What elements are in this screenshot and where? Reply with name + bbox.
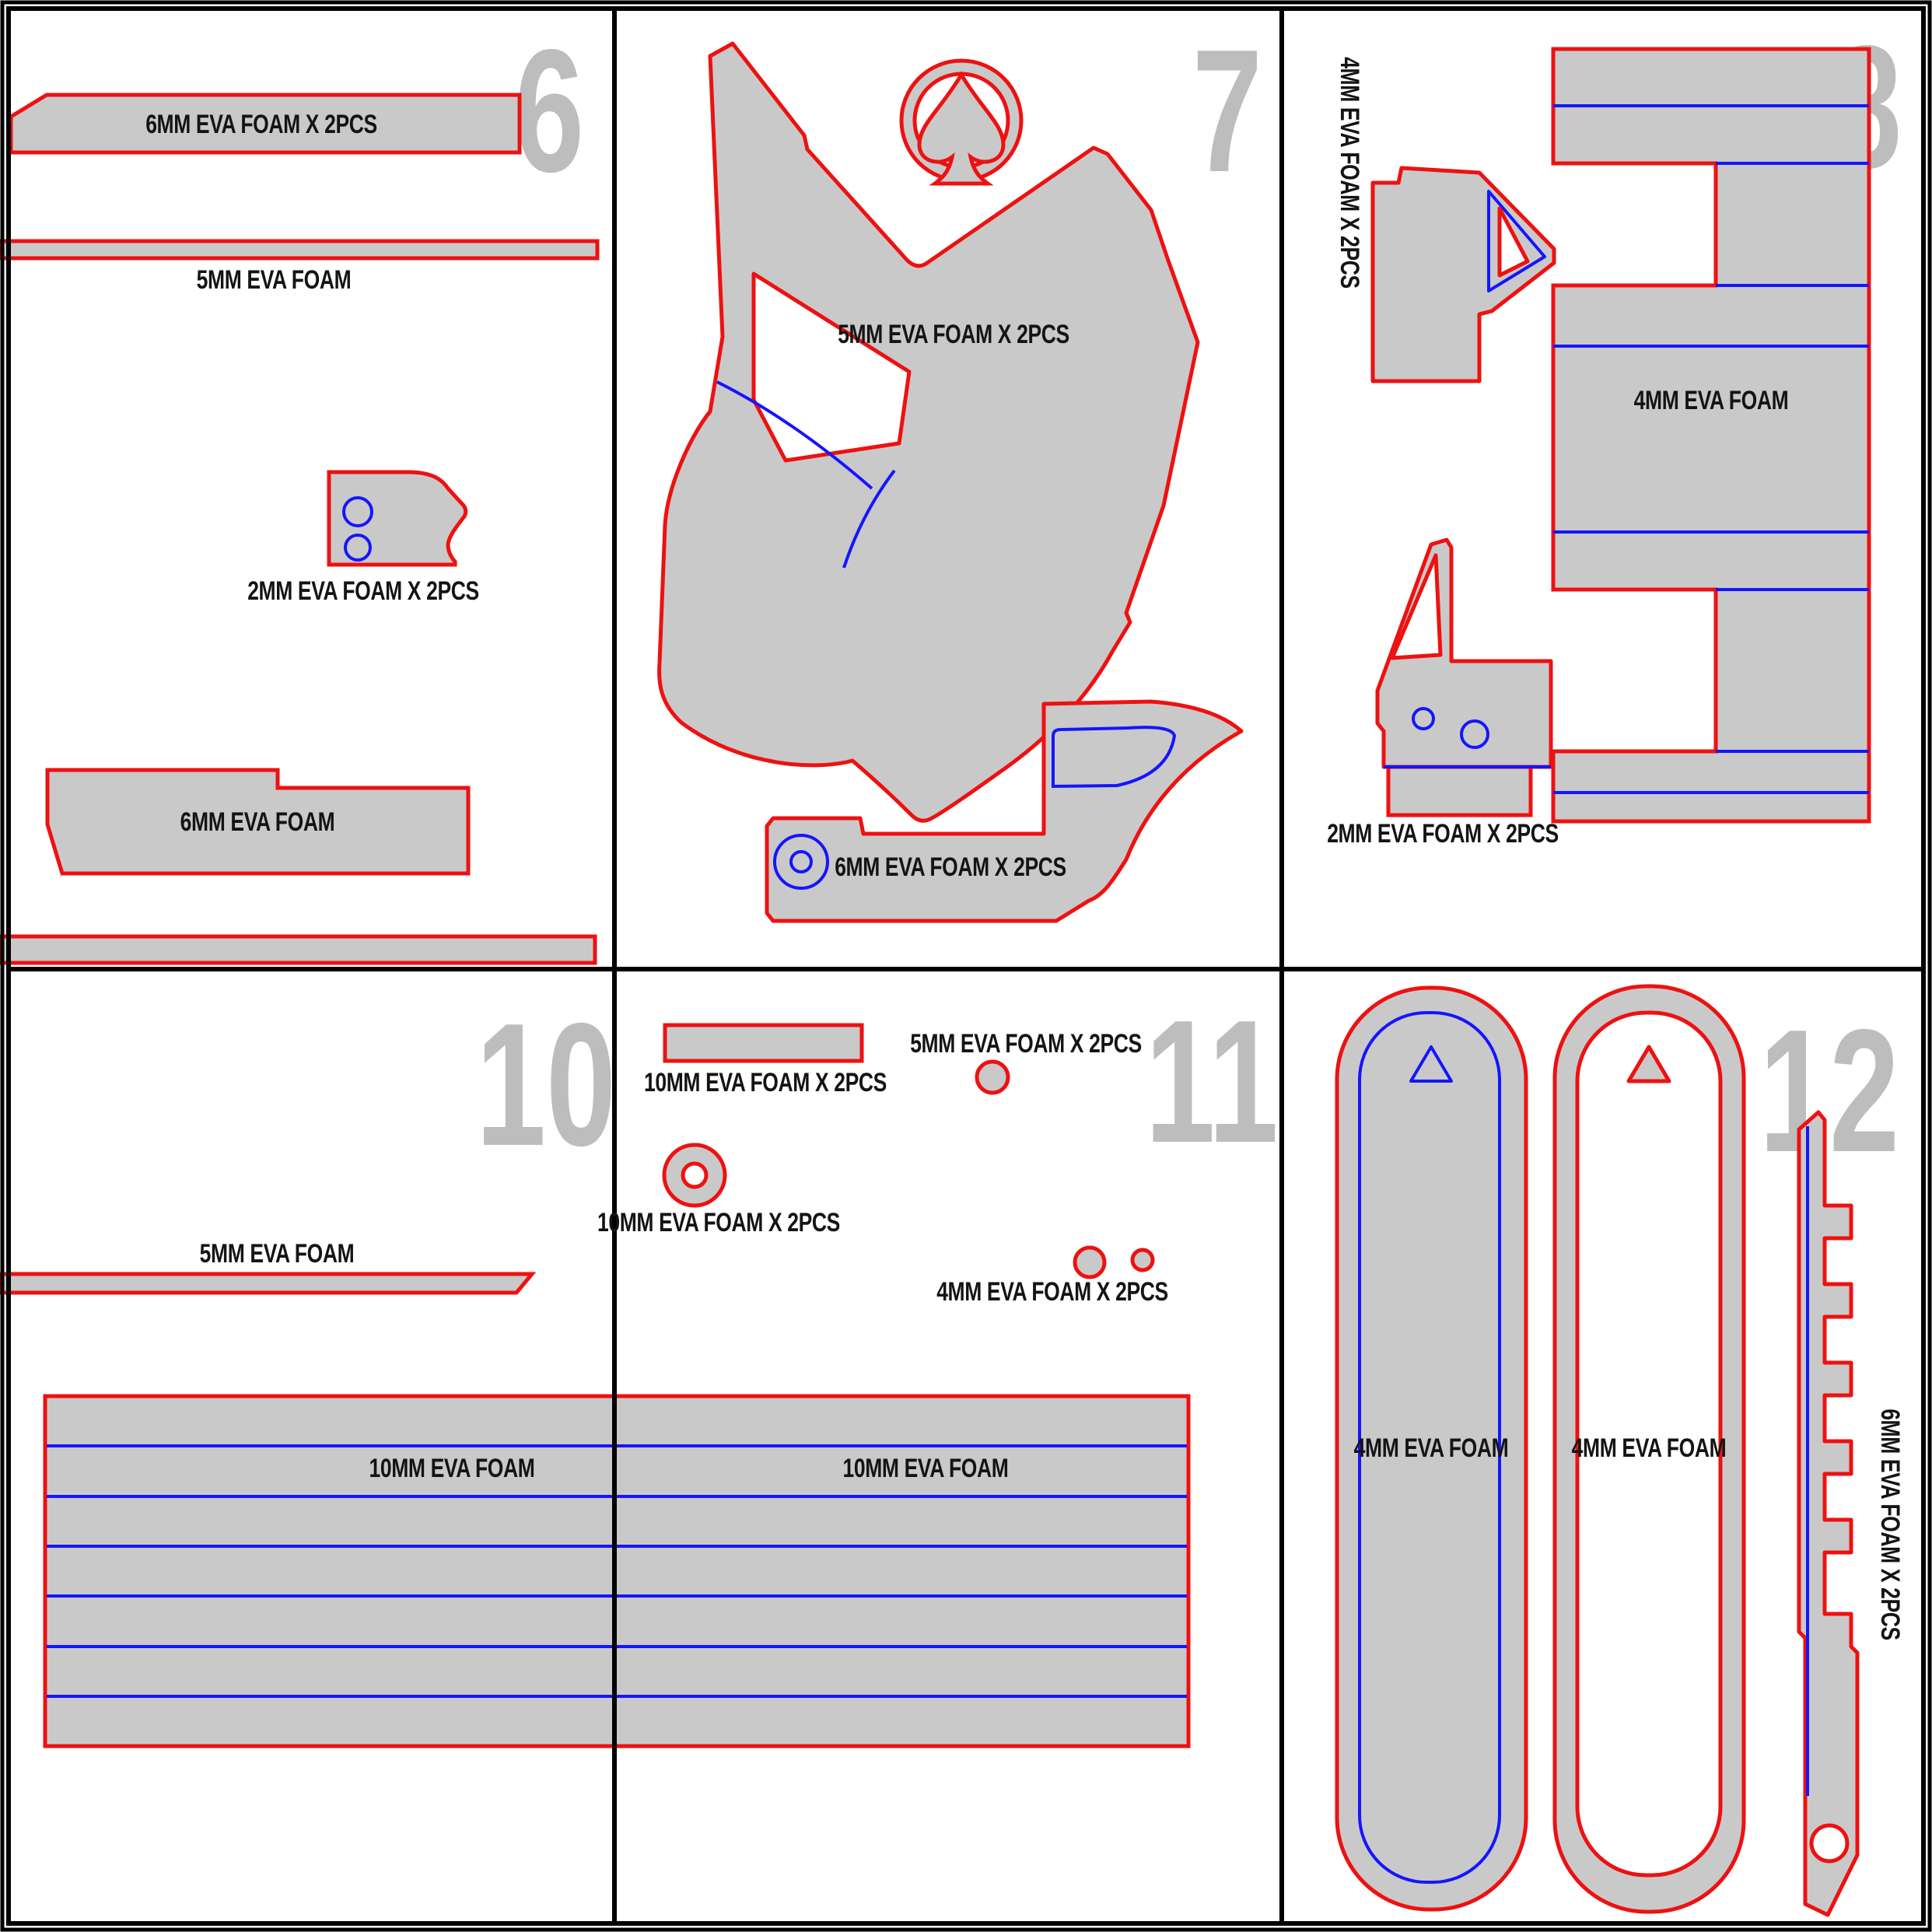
pattern-sheet: 6 7 8 10 11 12 [0,0,1932,1932]
piece-label: 5MM EVA FOAM [200,1241,355,1267]
piece-label: 5MM EVA FOAM [197,267,352,293]
column-dividers [614,9,1282,1923]
piece-label: 2MM EVA FOAM X 2PCS [247,578,479,604]
piece-label: 2MM EVA FOAM X 2PCS [1327,821,1559,847]
piece-label: 6MM EVA FOAM [180,809,335,835]
piece-label: 4MM EVA FOAM X 2PCS [936,1279,1168,1305]
piece-label: 5MM EVA FOAM X 2PCS [838,321,1069,348]
piece-label: 10MM EVA FOAM [842,1455,1008,1482]
piece-label-vertical: 6MM EVA FOAM X 2PCS [1877,1409,1903,1640]
piece-label: 10MM EVA FOAM X 2PCS [597,1209,840,1236]
piece-label-vertical: 4MM EVA FOAM X 2PCS [1336,57,1363,289]
piece-label: 10MM EVA FOAM [369,1455,534,1482]
piece-label: 5MM EVA FOAM X 2PCS [910,1031,1142,1057]
piece-label: 4MM EVA FOAM [1354,1435,1509,1461]
piece-label: 4MM EVA FOAM [1572,1435,1727,1461]
panel-frame [9,9,1923,1923]
piece-label: 4MM EVA FOAM [1634,387,1789,414]
piece-label: 6MM EVA FOAM X 2PCS [145,111,377,138]
piece-label: 10MM EVA FOAM X 2PCS [644,1069,887,1096]
piece-label: 6MM EVA FOAM X 2PCS [835,854,1066,880]
